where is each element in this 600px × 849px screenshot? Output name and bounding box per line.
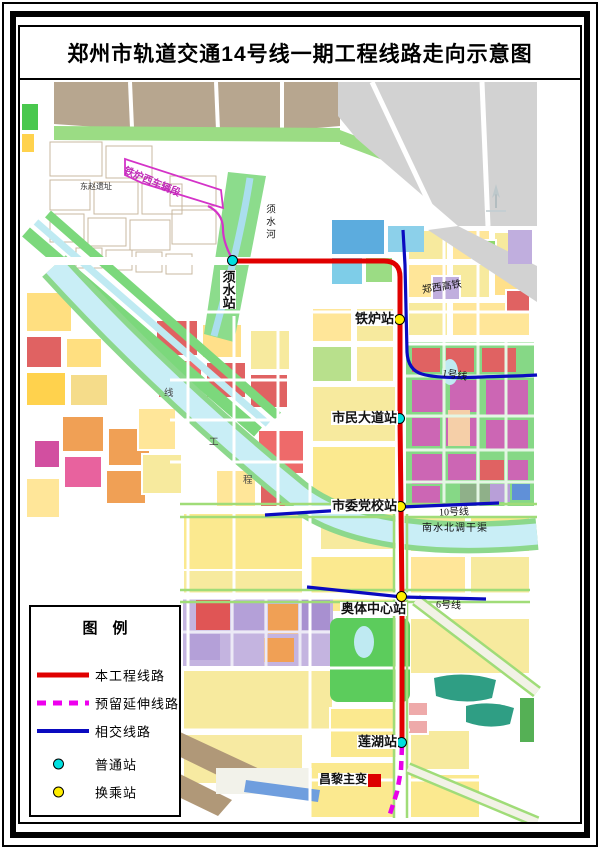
label-canal-char-1: 线: [164, 390, 174, 400]
extension-south-line: [389, 746, 402, 817]
legend-label: 本工程线路: [95, 666, 165, 685]
parcel-outlines: [50, 142, 216, 274]
legend-label: 相交线路: [95, 722, 151, 741]
label-tielu-depot: 铁炉西车辆段: [122, 166, 181, 199]
title-box: 郑州市轨道交通14号线一期工程线路走向示意图: [20, 27, 580, 80]
label-station-lianhu: 莲湖站: [357, 735, 398, 749]
legend-label: 换乘站: [95, 783, 137, 802]
label-station-shiweidangxiao: 市委党校站: [331, 499, 398, 513]
label-dongzhao-ruins: 东赵遗址: [80, 183, 112, 191]
content-frame: 郑州市轨道交通14号线一期工程线路走向示意图: [18, 25, 582, 824]
legend-label: 预留延伸线路: [95, 694, 179, 713]
yellow-station-swatch: [53, 787, 64, 798]
label-station-xushui: 须水站: [220, 270, 236, 309]
legend-title: 图 例: [31, 617, 179, 638]
magenta-dashed-swatch: [37, 701, 89, 706]
label-line6: 6号线: [436, 600, 462, 612]
legend-item-project-line: 本工程线路: [31, 667, 179, 683]
line1-path: [403, 230, 537, 378]
legend-item-reserved-extension: 预留延伸线路: [31, 695, 179, 711]
legend-item-transfer-station: 换乘站: [31, 784, 179, 800]
page-title: 郑州市轨道交通14号线一期工程线路走向示意图: [67, 38, 532, 68]
legend-item-regular-station: 普通站: [31, 756, 179, 772]
north-compass-icon: [486, 184, 506, 211]
label-canal-char-2: 工: [209, 439, 219, 449]
route-map: 东赵遗址 铁炉西车辆段 须水河 须水站 郑西高铁 铁炉站 1号线 市民大道站 市…: [20, 80, 580, 822]
label-zhengxi-hsr: 郑西高铁: [421, 280, 462, 297]
label-changli-substation: 昌黎主变: [318, 773, 368, 786]
label-line10: 10号线: [439, 507, 469, 519]
label-canal: 南水北调干渠: [422, 524, 488, 535]
label-xushui-river: 须水河: [263, 204, 273, 242]
extension-north-line: [208, 206, 233, 260]
label-station-tielu: 铁炉站: [354, 312, 395, 326]
label-line1: 1号线: [441, 369, 467, 383]
metro-lines: [125, 159, 537, 817]
page: 郑州市轨道交通14号线一期工程线路走向示意图: [0, 0, 600, 849]
cyan-station-swatch: [53, 759, 64, 770]
blue-line-swatch: [37, 729, 89, 733]
legend-item-intersecting-line: 相交线路: [31, 723, 179, 739]
label-canal-char-3: 程: [243, 477, 253, 487]
legend-box: 图 例 本工程线路 预留延伸线路 相交线路 普通站: [29, 605, 181, 817]
station-dot-tielu: [394, 314, 405, 325]
station-dot-xushui: [227, 255, 238, 266]
red-line-swatch: [37, 673, 89, 678]
label-station-aotizhongxin: 奥体中心站: [340, 602, 407, 616]
label-station-shimindadao: 市民大道站: [331, 411, 398, 425]
legend-label: 普通站: [95, 755, 137, 774]
substation-marker: [368, 774, 381, 787]
